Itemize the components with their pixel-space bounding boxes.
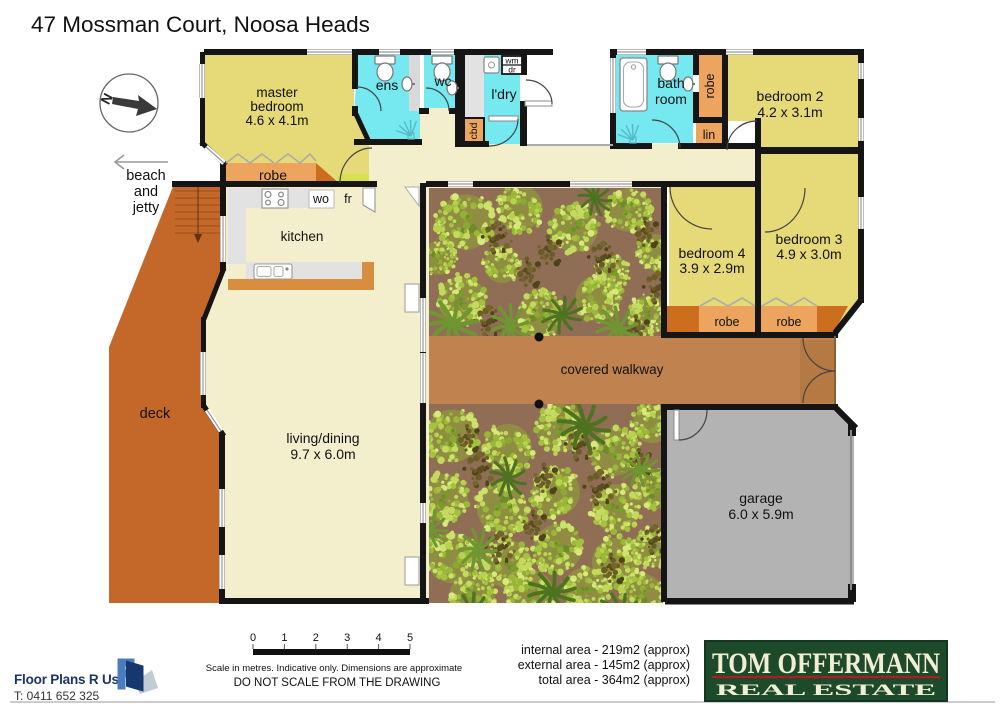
svg-text:3: 3 — [344, 632, 350, 644]
svg-text:living/dining: living/dining — [286, 430, 359, 446]
svg-text:TOM OFFERMANN: TOM OFFERMANN — [712, 647, 940, 680]
svg-text:cbd: cbd — [468, 122, 480, 139]
svg-text:garage: garage — [739, 490, 783, 506]
svg-text:4.9 x 3.0m: 4.9 x 3.0m — [776, 246, 841, 262]
svg-text:bedroom 2: bedroom 2 — [757, 88, 824, 104]
svg-text:4.2 x 3.1m: 4.2 x 3.1m — [757, 104, 822, 120]
svg-text:4.6 x 4.1m: 4.6 x 4.1m — [245, 113, 308, 128]
svg-text:0: 0 — [250, 632, 256, 644]
svg-text:Scale in metres. Indicative on: Scale in metres. Indicative only. Dimens… — [206, 663, 462, 674]
svg-text:T: 0411 652 325: T: 0411 652 325 — [14, 689, 100, 703]
svg-text:6.0 x 5.9m: 6.0 x 5.9m — [728, 506, 793, 522]
svg-text:fr: fr — [344, 192, 352, 206]
svg-text:wc: wc — [433, 73, 451, 89]
svg-text:3.9 x 2.9m: 3.9 x 2.9m — [679, 260, 744, 276]
svg-text:bedroom 4: bedroom 4 — [679, 245, 746, 261]
svg-text:master: master — [256, 85, 298, 100]
svg-text:internal area - 219m2 (approx): internal area - 219m2 (approx) — [521, 643, 690, 657]
svg-text:l'dry: l'dry — [491, 86, 516, 102]
svg-text:robe: robe — [259, 167, 287, 183]
svg-text:5: 5 — [407, 632, 413, 644]
svg-text:Floor Plans R Us: Floor Plans R Us — [14, 672, 119, 687]
svg-text:wo: wo — [312, 192, 329, 206]
svg-text:DO NOT SCALE FROM THE DRAWING: DO NOT SCALE FROM THE DRAWING — [234, 677, 441, 689]
svg-text:REAL ESTATE: REAL ESTATE — [716, 682, 936, 699]
svg-text:room: room — [655, 91, 687, 107]
svg-text:dr: dr — [508, 65, 516, 75]
svg-text:total area - 364m2 (approx): total area - 364m2 (approx) — [539, 673, 690, 687]
svg-text:ens: ens — [376, 77, 399, 93]
svg-text:1: 1 — [281, 632, 287, 644]
svg-text:jetty: jetty — [132, 200, 160, 216]
svg-text:lin: lin — [703, 128, 716, 142]
svg-text:9.7 x 6.0m: 9.7 x 6.0m — [290, 446, 355, 462]
svg-text:bath: bath — [657, 75, 684, 91]
svg-text:robe: robe — [714, 315, 739, 329]
svg-text:and: and — [134, 184, 158, 200]
svg-text:deck: deck — [140, 406, 171, 422]
svg-text:robe: robe — [776, 315, 801, 329]
svg-text:2: 2 — [313, 632, 319, 644]
svg-text:47 Mossman Court, Noosa Heads: 47 Mossman Court, Noosa Heads — [31, 12, 370, 37]
svg-text:robe: robe — [703, 73, 717, 98]
svg-text:bedroom: bedroom — [250, 99, 303, 114]
svg-text:covered walkway: covered walkway — [561, 362, 664, 377]
svg-text:4: 4 — [376, 632, 382, 644]
svg-text:beach: beach — [126, 168, 166, 184]
svg-text:bedroom 3: bedroom 3 — [776, 231, 843, 247]
svg-text:external area - 145m2 (approx): external area - 145m2 (approx) — [518, 658, 690, 672]
svg-text:kitchen: kitchen — [281, 229, 324, 244]
